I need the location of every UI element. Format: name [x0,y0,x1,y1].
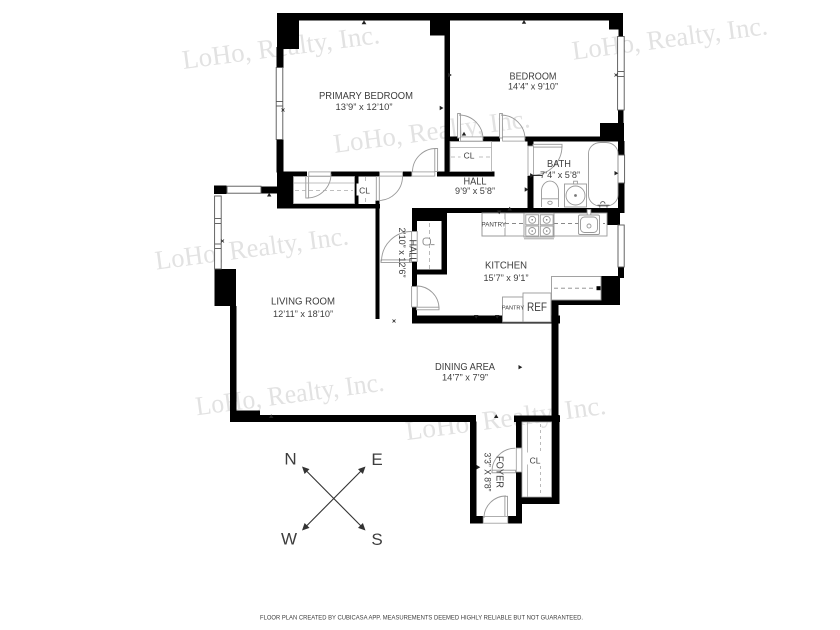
svg-text:PANTRY: PANTRY [482,222,507,229]
svg-text:15’7” x 9’1”: 15’7” x 9’1” [484,273,529,284]
svg-text:9’9” x 5’8”: 9’9” x 5’8” [455,186,495,197]
svg-text:REF: REF [527,302,547,314]
svg-text:12’11” x 18’10”: 12’11” x 18’10” [273,309,333,320]
svg-text:2’10” x 12’6”: 2’10” x 12’6” [396,228,407,278]
svg-text:CL: CL [464,151,475,161]
svg-text:E: E [371,450,382,469]
svg-text:14’4” x 9’10”: 14’4” x 9’10” [508,82,558,93]
svg-text:BATH: BATH [547,158,571,170]
svg-text:FLOOR PLAN CREATED BY CUBICASA: FLOOR PLAN CREATED BY CUBICASA APP. MEAS… [260,615,583,622]
svg-text:W: W [281,530,297,549]
svg-text:FOYER: FOYER [494,456,506,488]
svg-text:KITCHEN: KITCHEN [485,260,527,272]
svg-text:PANTRY: PANTRY [502,306,524,312]
svg-text:PRIMARY BEDROOM: PRIMARY BEDROOM [319,90,413,102]
svg-text:N: N [284,450,296,469]
svg-text:LIVING ROOM: LIVING ROOM [271,296,335,308]
svg-text:3’3” X 8’8”: 3’3” X 8’8” [482,453,493,492]
svg-text:CL: CL [359,186,370,196]
svg-text:S: S [371,530,382,549]
svg-text:7’4” x 5’8”: 7’4” x 5’8” [540,170,580,181]
svg-text:DINING AREA: DINING AREA [435,361,495,373]
svg-text:14’7” x 7’9”: 14’7” x 7’9” [442,373,488,384]
svg-text:CL: CL [530,456,541,466]
svg-text:HALL: HALL [407,240,419,263]
svg-text:13’9” x 12’10”: 13’9” x 12’10” [336,102,393,113]
